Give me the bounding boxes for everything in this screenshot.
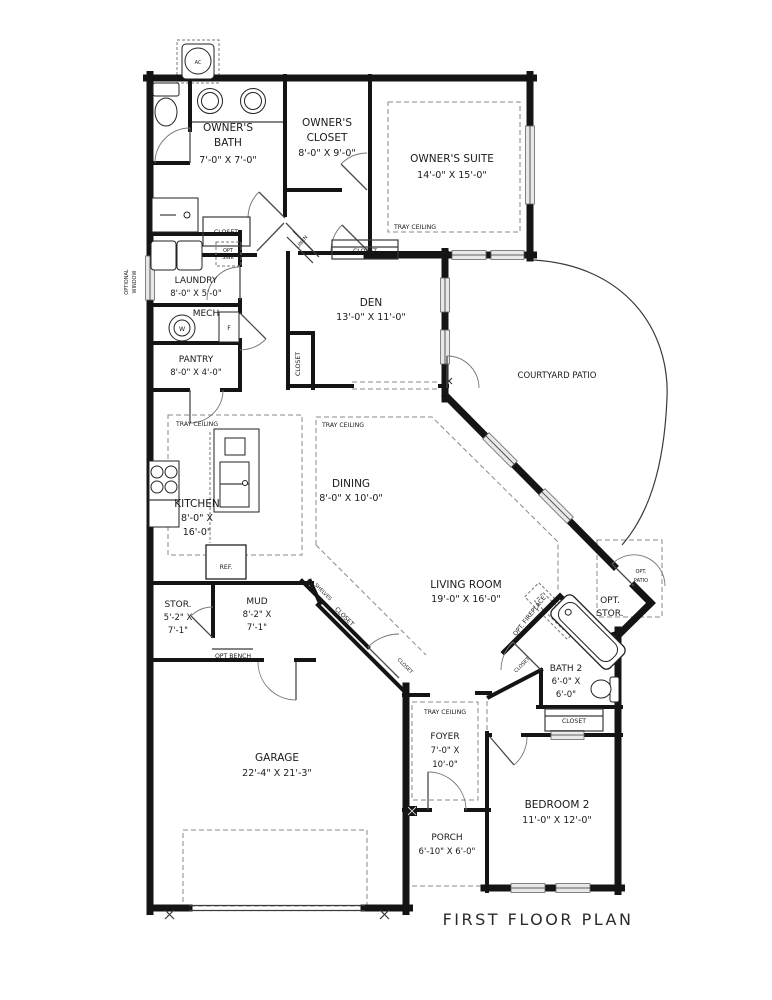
label-pantry: PANTRY	[179, 355, 214, 365]
den-cased-opening	[352, 382, 440, 389]
kitchen-island	[214, 429, 259, 512]
living-window-2	[539, 489, 574, 524]
label-pantry-dim: 8'-0" X 4'-0"	[170, 368, 222, 378]
label-tray-ceiling-foyer: TRAY CEILING	[423, 709, 466, 716]
label-mech: MECH	[193, 309, 220, 319]
garage-door-outline	[183, 830, 367, 906]
label-stor-dim1: 5'-2" X	[164, 613, 193, 623]
label-living-room-dim: 19'-0" X 16'-0"	[431, 594, 501, 605]
label-owners-suite-dim: 14'-0" X 15'-0"	[417, 170, 487, 181]
label-opt-bench: OPT BENCH	[215, 653, 251, 660]
label-opt-patio-2: PATIO	[634, 578, 648, 584]
floor-plan-canvas: OWNER'S BATH 7'-0" X 7'-0" OWNER'S CLOSE…	[0, 0, 772, 1000]
label-foyer-dim1: 7'-0" X	[431, 746, 460, 756]
label-kitchen-dim1: 8'-0" X	[181, 513, 214, 524]
label-garage: GARAGE	[255, 752, 299, 764]
label-closet-bath2-diag: CLOSET	[513, 656, 532, 675]
refrigerator	[206, 545, 246, 579]
page-title: FIRST FLOOR PLAN	[443, 910, 634, 929]
label-opt-sink-1: OPT	[223, 248, 234, 254]
tray-ceiling-suite-outline	[388, 102, 520, 232]
label-closet-foyer: CLOSET	[396, 657, 415, 676]
floor-plan-drawing: OWNER'S BATH 7'-0" X 7'-0" OWNER'S CLOSE…	[0, 0, 772, 1000]
bath-sinks	[192, 89, 283, 123]
label-courtyard-patio: COURTYARD PATIO	[518, 371, 597, 381]
label-furnace: F	[227, 325, 231, 332]
label-kitchen-dim2: 16'-0"	[183, 527, 212, 538]
label-dining-dim: 8'-0" X 10'-0"	[319, 493, 383, 504]
closet-boxes	[203, 217, 603, 731]
label-den: DEN	[360, 297, 383, 309]
label-kitchen: KITCHEN	[174, 498, 220, 510]
label-optional-window-2: WINDOW	[132, 271, 138, 294]
label-bedroom2-dim: 11'-0" X 12'-0"	[522, 815, 592, 826]
label-linen: LINEN	[295, 235, 309, 250]
label-mud-dim2: 7'-1"	[247, 623, 267, 633]
label-mud: MUD	[246, 597, 267, 607]
label-bedroom2: BEDROOM 2	[525, 799, 590, 811]
label-owners-closet-2: CLOSET	[307, 132, 348, 144]
label-closet-bath2-strip: CLOSET	[562, 718, 586, 725]
label-foyer-dim2: 10'-0"	[432, 760, 458, 770]
label-porch: PORCH	[431, 833, 462, 843]
toilet-bath2	[591, 677, 619, 702]
vanity	[152, 198, 198, 232]
label-opt-sink-2: SINK	[222, 255, 234, 261]
washer-dryer	[151, 241, 202, 270]
label-owners-closet-dim: 8'-0" X 9'-0"	[298, 148, 356, 159]
label-bath2-dim1: 6'-0" X	[552, 677, 581, 687]
label-opt-stor-1: OPT.	[600, 596, 620, 606]
label-owners-bath-1: OWNER'S	[203, 122, 253, 134]
porch-column	[407, 806, 417, 816]
label-stor: STOR.	[164, 600, 191, 610]
label-mud-dim1: 8'-2" X	[243, 610, 272, 620]
label-foyer: FOYER	[430, 732, 459, 742]
label-bath2: BATH 2	[550, 664, 582, 674]
label-owners-bath-2: BATH	[214, 137, 242, 149]
label-water-heater: W	[179, 326, 185, 333]
label-owners-suite: OWNER'S SUITE	[410, 153, 494, 165]
range	[149, 461, 179, 527]
toilet-owners-bath	[153, 83, 179, 126]
label-stor-dim2: 7'-1"	[168, 626, 188, 636]
label-ref: REF.	[220, 564, 233, 571]
label-laundry-dim: 8'-0" X 5'-0"	[170, 289, 222, 299]
label-opt-patio-1: OPT.	[635, 569, 646, 575]
label-closet-suite: CLOSET	[353, 248, 377, 255]
label-optional-window-1: OPTIONAL	[124, 269, 130, 295]
label-owners-bath-dim: 7'-0" X 7'-0"	[199, 155, 257, 166]
labels: OWNER'S BATH 7'-0" X 7'-0" OWNER'S CLOSE…	[124, 60, 648, 929]
label-tray-ceiling-suite: TRAY CEILING	[393, 224, 436, 231]
label-closet-den: CLOSET	[295, 352, 302, 376]
label-garage-dim: 22'-4" X 21'-3"	[242, 768, 312, 779]
label-tray-ceiling-kitchen: TRAY CEILING	[175, 421, 218, 428]
label-tray-ceiling-dining: TRAY CEILING	[321, 422, 364, 429]
living-window-1	[483, 433, 518, 468]
label-bath2-dim2: 6'-0"	[556, 690, 576, 700]
label-den-dim: 13'-0" X 11'-0"	[336, 312, 406, 323]
label-owners-closet-1: OWNER'S	[302, 117, 352, 129]
label-opt-stor-2: STOR.	[596, 609, 623, 619]
label-dining: DINING	[332, 478, 370, 490]
label-closet-bath-hall: CLOSET	[214, 229, 238, 236]
label-living-room: LIVING ROOM	[430, 579, 501, 591]
label-porch-dim: 6'-10" X 6'-0"	[419, 847, 476, 857]
label-laundry: LAUNDRY	[175, 276, 218, 286]
label-ac: AC	[195, 60, 202, 66]
